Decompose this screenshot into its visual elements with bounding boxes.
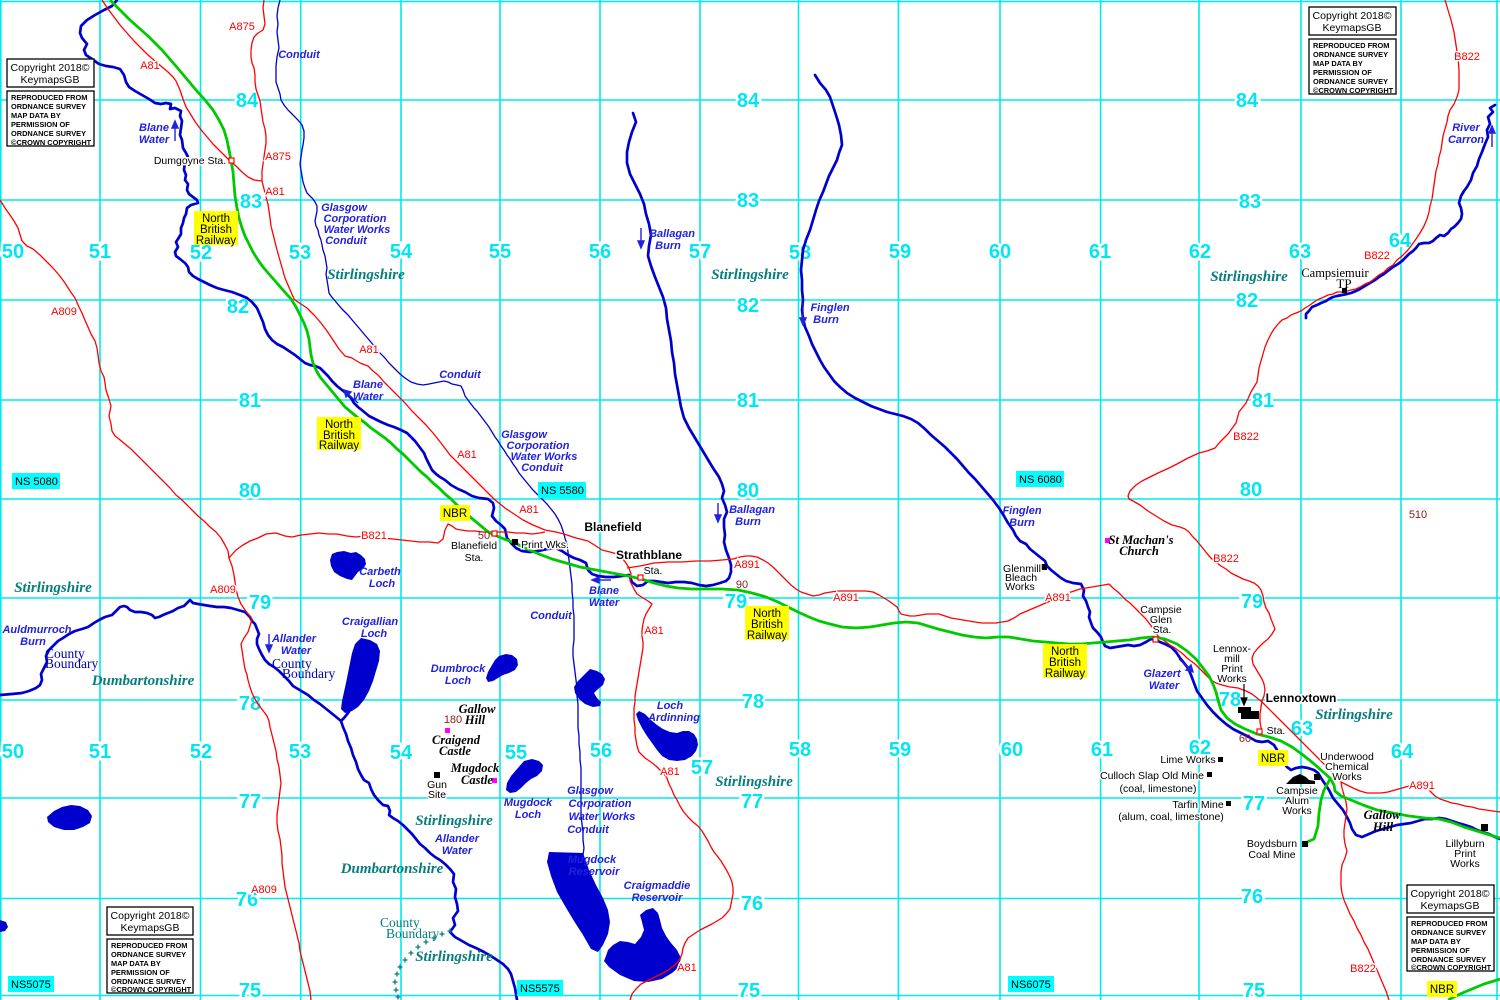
svg-text:56: 56	[589, 241, 611, 263]
svg-text:Blane: Blane	[589, 585, 619, 597]
svg-text:81: 81	[737, 390, 759, 412]
svg-text:Sta.: Sta.	[644, 565, 663, 577]
svg-text:(alum, coal, limestone): (alum, coal, limestone)	[1118, 811, 1224, 823]
svg-text:Hill: Hill	[464, 713, 486, 727]
svg-text:B822: B822	[1350, 963, 1376, 975]
svg-text:Boundary: Boundary	[45, 656, 98, 671]
svg-text:Sta.: Sta.	[1153, 624, 1172, 636]
svg-text:TP: TP	[1336, 276, 1351, 291]
svg-text:Reservoir: Reservoir	[632, 892, 683, 904]
svg-text:Burn: Burn	[813, 314, 839, 326]
svg-text:Water: Water	[1149, 680, 1180, 692]
svg-text:KeymapsGB: KeymapsGB	[21, 74, 80, 86]
svg-text:59: 59	[889, 739, 911, 761]
svg-text:Railway: Railway	[319, 440, 360, 452]
svg-text:©CROWN COPYRIGHT: ©CROWN COPYRIGHT	[11, 138, 92, 147]
svg-text:78: 78	[742, 691, 764, 713]
svg-text:NS 6080: NS 6080	[1019, 474, 1062, 486]
svg-text:Ardinning: Ardinning	[647, 712, 700, 724]
svg-text:ORDNANCE SURVEY: ORDNANCE SURVEY	[1411, 928, 1486, 937]
svg-text:Reservoir: Reservoir	[569, 866, 620, 878]
svg-text:Mugdock: Mugdock	[568, 854, 617, 866]
svg-text:80: 80	[239, 480, 261, 502]
svg-text:Loch: Loch	[445, 675, 472, 687]
svg-text:60: 60	[1239, 733, 1251, 745]
svg-text:PERMISSION OF: PERMISSION OF	[111, 968, 170, 977]
svg-text:NS6075: NS6075	[1011, 979, 1051, 991]
svg-text:Ballagan: Ballagan	[649, 228, 695, 240]
svg-text:54: 54	[390, 742, 413, 764]
svg-text:79: 79	[1241, 591, 1263, 613]
svg-text:Sta.: Sta.	[465, 552, 484, 564]
svg-text:Railway: Railway	[1045, 668, 1086, 680]
svg-text:79: 79	[249, 592, 271, 614]
svg-text:B822: B822	[1364, 250, 1390, 262]
svg-text:Burn: Burn	[655, 240, 681, 252]
svg-text:84: 84	[737, 90, 760, 112]
svg-text:82: 82	[1236, 290, 1258, 312]
svg-text:Water: Water	[353, 391, 384, 403]
svg-text:PERMISSION OF: PERMISSION OF	[1411, 946, 1470, 955]
svg-text:90: 90	[736, 579, 748, 591]
svg-text:REPRODUCED FROM: REPRODUCED FROM	[1411, 919, 1487, 928]
svg-text:Copyright 2018©: Copyright 2018©	[1411, 888, 1490, 900]
svg-text:Campsiemuir: Campsiemuir	[1301, 266, 1369, 280]
svg-text:Carbeth: Carbeth	[359, 566, 401, 578]
svg-text:54: 54	[390, 241, 413, 263]
svg-text:Carron: Carron	[1448, 134, 1484, 146]
svg-text:510: 510	[1409, 509, 1427, 521]
svg-text:A81: A81	[519, 504, 539, 516]
svg-text:Stirlingshire: Stirlingshire	[1210, 269, 1288, 285]
svg-text:Burn: Burn	[735, 516, 761, 528]
svg-text:(coal, limestone): (coal, limestone)	[1119, 783, 1196, 795]
svg-text:Corporation: Corporation	[569, 798, 632, 810]
svg-text:Blane: Blane	[139, 122, 169, 134]
svg-text:Copyright 2018©: Copyright 2018©	[1313, 10, 1392, 22]
svg-text:76: 76	[741, 893, 763, 915]
svg-text:MAP DATA BY: MAP DATA BY	[1411, 937, 1461, 946]
svg-text:75: 75	[738, 980, 760, 1000]
svg-text:75: 75	[1243, 980, 1265, 1000]
svg-text:NBR: NBR	[1430, 984, 1454, 996]
svg-text:Boundary: Boundary	[386, 926, 439, 941]
svg-text:Site: Site	[428, 789, 446, 801]
svg-text:81: 81	[239, 390, 261, 412]
svg-text:A875: A875	[265, 151, 291, 163]
svg-text:Copyright 2018©: Copyright 2018©	[111, 910, 190, 922]
svg-text:63: 63	[1289, 241, 1311, 263]
svg-text:Lennoxtown: Lennoxtown	[1266, 691, 1337, 705]
svg-text:Finglen: Finglen	[810, 302, 849, 314]
svg-text:MAP DATA BY: MAP DATA BY	[1313, 59, 1363, 68]
svg-text:Loch: Loch	[515, 809, 542, 821]
svg-text:B821: B821	[361, 530, 387, 542]
svg-text:Tarfin Mine: Tarfin Mine	[1172, 799, 1224, 811]
svg-text:REPRODUCED FROM: REPRODUCED FROM	[111, 941, 187, 950]
svg-text:A81: A81	[265, 186, 285, 198]
svg-text:Water: Water	[442, 845, 473, 857]
svg-text:A891: A891	[833, 592, 859, 604]
svg-text:Glasgow: Glasgow	[567, 785, 614, 797]
svg-text:Stirlingshire: Stirlingshire	[711, 267, 789, 283]
svg-text:80: 80	[1240, 479, 1262, 501]
svg-text:ORDNANCE SURVEY: ORDNANCE SURVEY	[11, 102, 86, 111]
svg-text:A809: A809	[51, 306, 77, 318]
svg-text:B822: B822	[1213, 553, 1239, 565]
svg-text:83: 83	[1239, 191, 1261, 213]
svg-text:Coal Mine: Coal Mine	[1248, 849, 1295, 861]
svg-text:A875: A875	[229, 21, 255, 33]
svg-text:KeymapsGB: KeymapsGB	[121, 922, 180, 934]
svg-text:Works: Works	[1282, 805, 1312, 817]
svg-text:Dumbrock: Dumbrock	[431, 663, 486, 675]
svg-text:Loch: Loch	[361, 628, 388, 640]
svg-text:Blanefield: Blanefield	[584, 520, 641, 534]
svg-text:77: 77	[741, 791, 763, 813]
svg-text:Sta.: Sta.	[1267, 725, 1286, 737]
svg-text:©CROWN COPYRIGHT: ©CROWN COPYRIGHT	[111, 985, 192, 994]
svg-text:Works: Works	[1332, 771, 1362, 783]
svg-text:Stirlingshire: Stirlingshire	[415, 949, 493, 965]
svg-text:Loch: Loch	[657, 700, 684, 712]
svg-text:Strathblane: Strathblane	[616, 548, 682, 562]
svg-text:A81: A81	[140, 60, 160, 72]
svg-text:76: 76	[1241, 886, 1263, 908]
svg-text:NS5575: NS5575	[520, 983, 560, 995]
svg-text:Water Works: Water Works	[569, 811, 636, 823]
svg-text:ORDNANCE SURVEY: ORDNANCE SURVEY	[1313, 50, 1388, 59]
svg-text:51: 51	[89, 741, 111, 763]
svg-text:©CROWN COPYRIGHT: ©CROWN COPYRIGHT	[1411, 963, 1492, 972]
svg-text:Conduit: Conduit	[278, 49, 321, 61]
svg-text:A81: A81	[457, 449, 477, 461]
svg-text:KeymapsGB: KeymapsGB	[1421, 900, 1480, 912]
svg-text:B822: B822	[1454, 51, 1480, 63]
svg-text:PERMISSION OF: PERMISSION OF	[11, 120, 70, 129]
svg-text:A891: A891	[1045, 592, 1071, 604]
svg-text:83: 83	[240, 191, 262, 213]
svg-text:57: 57	[691, 757, 713, 779]
svg-text:A81: A81	[359, 344, 379, 356]
svg-text:Craigallian: Craigallian	[342, 616, 399, 628]
svg-text:Railway: Railway	[747, 630, 788, 642]
svg-text:64: 64	[1391, 741, 1414, 763]
svg-text:78: 78	[1219, 689, 1241, 711]
svg-text:77: 77	[239, 791, 261, 813]
svg-text:81: 81	[1252, 390, 1274, 412]
svg-text:Works: Works	[1450, 858, 1480, 870]
svg-text:58: 58	[789, 739, 811, 761]
svg-text:REPRODUCED FROM: REPRODUCED FROM	[1313, 41, 1389, 50]
svg-text:82: 82	[737, 295, 759, 317]
svg-text:Ballagan: Ballagan	[729, 504, 775, 516]
svg-text:Conduit: Conduit	[325, 235, 368, 247]
svg-text:52: 52	[190, 741, 212, 763]
svg-text:51: 51	[89, 241, 111, 263]
svg-text:Dumgoyne Sta.: Dumgoyne Sta.	[154, 155, 226, 167]
svg-text:Loch: Loch	[369, 578, 396, 590]
svg-text:NS5075: NS5075	[11, 979, 51, 991]
svg-text:Conduit: Conduit	[521, 462, 564, 474]
svg-text:62: 62	[1189, 241, 1211, 263]
svg-text:REPRODUCED FROM: REPRODUCED FROM	[11, 93, 87, 102]
svg-text:Glazert: Glazert	[1143, 668, 1182, 680]
svg-text:60: 60	[1001, 739, 1023, 761]
svg-text:MAP DATA BY: MAP DATA BY	[111, 959, 161, 968]
svg-text:Blanefield: Blanefield	[451, 540, 497, 552]
svg-text:NS 5080: NS 5080	[15, 476, 58, 488]
svg-text:50: 50	[2, 241, 24, 263]
svg-text:Auldmurroch: Auldmurroch	[1, 624, 71, 636]
svg-text:Dumbartonshire: Dumbartonshire	[340, 861, 444, 877]
svg-text:Allander: Allander	[271, 633, 317, 645]
svg-text:Castle: Castle	[439, 744, 471, 758]
svg-text:82: 82	[227, 296, 249, 318]
svg-text:84: 84	[1236, 90, 1259, 112]
svg-text:50: 50	[2, 741, 24, 763]
svg-text:KeymapsGB: KeymapsGB	[1323, 22, 1382, 34]
svg-text:ORDNANCE SURVEY: ORDNANCE SURVEY	[111, 950, 186, 959]
svg-text:Railway: Railway	[196, 235, 237, 247]
svg-text:A891: A891	[1409, 780, 1435, 792]
svg-text:Conduit: Conduit	[439, 369, 482, 381]
svg-text:Blane: Blane	[353, 379, 383, 391]
svg-text:83: 83	[737, 190, 759, 212]
svg-text:A809: A809	[210, 584, 236, 596]
svg-text:Culloch Slap Old Mine: Culloch Slap Old Mine	[1100, 770, 1204, 782]
svg-text:61: 61	[1089, 241, 1111, 263]
svg-text:Stirlingshire: Stirlingshire	[327, 267, 405, 283]
svg-text:NS 5580: NS 5580	[541, 485, 584, 497]
svg-text:ORDNANCE SURVEY: ORDNANCE SURVEY	[11, 129, 86, 138]
svg-text:B822: B822	[1233, 431, 1259, 443]
svg-text:80: 80	[737, 480, 759, 502]
svg-text:Boundary: Boundary	[282, 666, 335, 681]
svg-text:Hill: Hill	[1372, 820, 1394, 834]
svg-text:Conduit: Conduit	[530, 610, 573, 622]
svg-text:©CROWN COPYRIGHT: ©CROWN COPYRIGHT	[1313, 86, 1394, 95]
svg-text:Lime Works: Lime Works	[1160, 754, 1215, 766]
svg-text:A81: A81	[644, 625, 664, 637]
svg-text:Stirlingshire: Stirlingshire	[715, 774, 793, 790]
svg-text:Stirlingshire: Stirlingshire	[14, 580, 92, 596]
svg-text:Stirlingshire: Stirlingshire	[415, 813, 493, 829]
svg-text:NBR: NBR	[443, 508, 467, 520]
svg-text:61: 61	[1091, 739, 1113, 761]
svg-text:57: 57	[689, 241, 711, 263]
svg-text:Burn: Burn	[20, 636, 46, 648]
svg-text:Mugdock: Mugdock	[504, 797, 553, 809]
svg-text:Copyright 2018©: Copyright 2018©	[11, 62, 90, 74]
svg-text:Print Wks.: Print Wks.	[521, 539, 569, 551]
svg-text:Water: Water	[139, 134, 170, 146]
svg-text:Works: Works	[1217, 673, 1247, 685]
svg-text:A809: A809	[251, 884, 277, 896]
svg-text:Works: Works	[1005, 581, 1035, 593]
svg-text:79: 79	[725, 591, 747, 613]
svg-text:Finglen: Finglen	[1002, 505, 1041, 517]
svg-text:MAP DATA BY: MAP DATA BY	[11, 111, 61, 120]
svg-text:Stirlingshire: Stirlingshire	[1315, 707, 1393, 723]
svg-text:Water: Water	[589, 597, 620, 609]
svg-text:59: 59	[889, 241, 911, 263]
svg-text:56: 56	[590, 740, 612, 762]
svg-text:PERMISSION OF: PERMISSION OF	[1313, 68, 1372, 77]
svg-text:77: 77	[1243, 793, 1265, 815]
svg-text:A891: A891	[734, 559, 760, 571]
svg-text:84: 84	[236, 90, 259, 112]
svg-text:60: 60	[989, 241, 1011, 263]
svg-text:53: 53	[289, 242, 311, 264]
svg-text:75: 75	[239, 980, 261, 1000]
svg-text:Burn: Burn	[1009, 517, 1035, 529]
svg-text:58: 58	[789, 242, 811, 264]
svg-text:NBR: NBR	[1261, 753, 1285, 765]
svg-text:55: 55	[489, 241, 511, 263]
svg-text:55: 55	[505, 742, 527, 764]
svg-text:Castle: Castle	[461, 773, 493, 787]
svg-text:ORDNANCE SURVEY: ORDNANCE SURVEY	[1313, 77, 1388, 86]
svg-text:53: 53	[289, 741, 311, 763]
svg-text:Dumbartonshire: Dumbartonshire	[91, 673, 195, 689]
svg-text:Allander: Allander	[434, 833, 480, 845]
svg-text:Conduit: Conduit	[567, 824, 610, 836]
svg-text:River: River	[1452, 122, 1480, 134]
svg-text:Craigmaddie: Craigmaddie	[624, 880, 691, 892]
svg-text:Church: Church	[1119, 544, 1159, 558]
svg-text:A81: A81	[677, 962, 697, 974]
svg-text:63: 63	[1291, 718, 1313, 740]
svg-text:A81: A81	[660, 766, 680, 778]
